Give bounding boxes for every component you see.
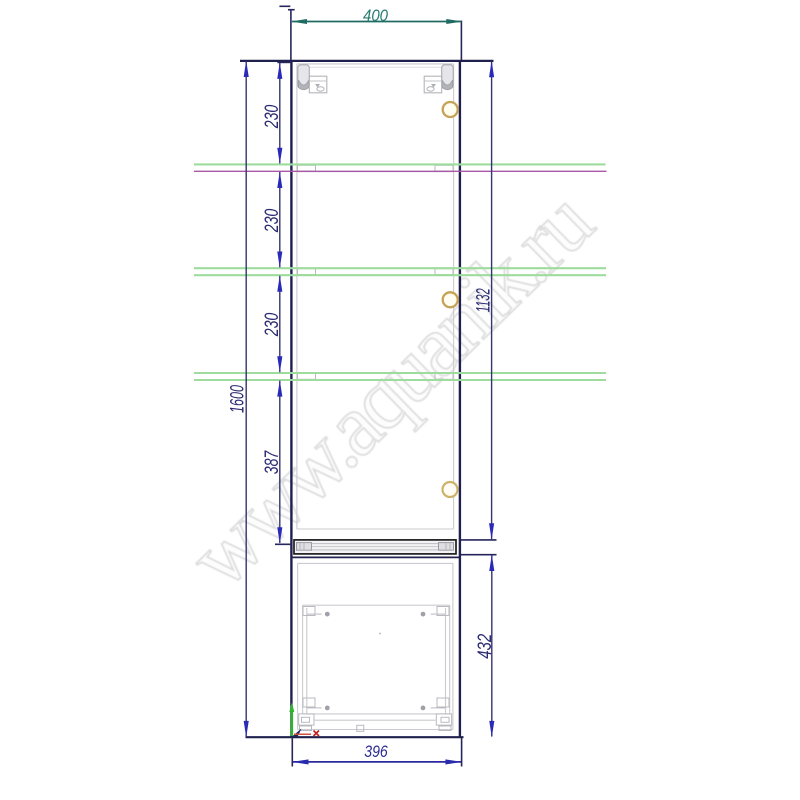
svg-text:230: 230 [262, 208, 283, 233]
svg-text:1600: 1600 [228, 385, 249, 413]
svg-text:396: 396 [364, 743, 388, 761]
svg-text:432: 432 [475, 633, 496, 658]
svg-text:387: 387 [262, 450, 283, 475]
svg-text:1132: 1132 [474, 288, 495, 312]
svg-text:230: 230 [262, 104, 283, 129]
svg-text:230: 230 [262, 312, 283, 337]
svg-text:400: 400 [363, 7, 389, 25]
